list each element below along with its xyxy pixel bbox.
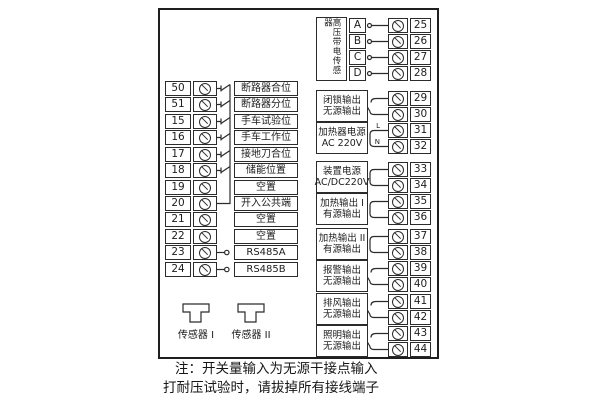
terminal-number: 41: [410, 294, 431, 309]
screw-terminal: [193, 245, 217, 260]
group-label-line2: 无源输出: [323, 106, 361, 117]
terminal-number: 36: [410, 210, 431, 225]
screw-terminal: [388, 107, 408, 122]
sensor-channel-label: C: [349, 50, 366, 65]
group-label-line2: 有源输出: [323, 244, 361, 255]
terminal-number: 23: [165, 245, 191, 260]
screw-terminal: [388, 34, 408, 49]
group-label-line1: 闭锁输出: [323, 95, 361, 106]
screw-terminal-icon: [392, 344, 404, 356]
screw-terminal-icon: [392, 52, 404, 64]
terminal-number: 51: [165, 97, 191, 112]
group-label-line1: 照明输出: [323, 330, 361, 341]
screw-terminal: [388, 310, 408, 325]
screw-terminal-icon: [392, 36, 404, 48]
input-signal-label: 空置: [234, 180, 298, 195]
screw-terminal: [193, 81, 217, 96]
screw-terminal: [388, 123, 408, 138]
terminal-number: 28: [410, 66, 431, 81]
screw-terminal: [193, 163, 217, 178]
terminal-number: 21: [165, 212, 191, 227]
screw-terminal-icon: [199, 198, 211, 210]
screw-terminal: [193, 180, 217, 195]
terminal-number: 42: [410, 310, 431, 325]
sensor-channel-label: D: [349, 66, 366, 81]
group-label-line2: 无源输出: [323, 276, 361, 287]
screw-terminal-icon: [199, 116, 211, 128]
input-signal-label: RS485B: [234, 262, 298, 277]
screw-terminal-icon: [199, 231, 211, 243]
terminal-number: 40: [410, 277, 431, 292]
input-signal-label: 开入公共端: [234, 196, 298, 211]
input-signal-label: 储能位置: [234, 163, 298, 178]
screw-terminal-icon: [392, 263, 404, 275]
terminal-number: 29: [410, 91, 431, 106]
screw-terminal-icon: [199, 264, 211, 276]
screw-terminal-icon: [392, 196, 404, 208]
screw-terminal-icon: [392, 247, 404, 259]
hv-sensor-group-label: 高压带电传感器: [316, 17, 347, 81]
terminal-number: 20: [165, 196, 191, 211]
input-signal-label: RS485A: [234, 245, 298, 260]
terminal-number: 35: [410, 194, 431, 209]
output-group-label: 闭锁输出 无源输出: [316, 90, 368, 122]
terminal-number: 19: [165, 180, 191, 195]
sensor-channel-label: B: [349, 34, 366, 49]
terminal-number: 24: [165, 262, 191, 277]
output-group-label: 报警输出 无源输出: [316, 260, 368, 292]
terminal-number: 32: [410, 139, 431, 154]
screw-terminal: [388, 277, 408, 292]
terminal-number: 15: [165, 114, 191, 129]
group-label-line1: 加热输出 I: [320, 198, 364, 209]
screw-terminal-icon: [392, 180, 404, 192]
screw-terminal-icon: [199, 182, 211, 194]
screw-terminal: [388, 342, 408, 357]
screw-terminal: [388, 178, 408, 193]
screw-terminal: [193, 114, 217, 129]
terminal-number: 44: [410, 342, 431, 357]
terminal-number: 17: [165, 147, 191, 162]
screw-terminal: [388, 245, 408, 260]
screw-terminal: [193, 196, 217, 211]
screw-terminal-icon: [199, 214, 211, 226]
screw-terminal: [388, 229, 408, 244]
group-label-line2: 无源输出: [323, 341, 361, 352]
group-label-line1: 装置电源: [323, 166, 361, 177]
screw-terminal-icon: [392, 68, 404, 80]
screw-terminal-icon: [199, 149, 211, 161]
footnote: 注：开关量输入为无源干接点输入 打耐压试验时，请拔掉所有接线端子: [163, 360, 379, 398]
screw-terminal: [388, 210, 408, 225]
sensor-1-label: 传感器 I: [170, 326, 222, 341]
screw-terminal-icon: [199, 99, 211, 111]
screw-terminal: [388, 194, 408, 209]
screw-terminal: [388, 91, 408, 106]
screw-terminal: [388, 261, 408, 276]
screw-terminal-icon: [392, 125, 404, 137]
screw-terminal-icon: [199, 165, 211, 177]
output-group-label: 加热器电源 AC 220V: [316, 122, 368, 154]
terminal-number: 22: [165, 229, 191, 244]
screw-terminal-icon: [392, 109, 404, 121]
group-label-line2: 有源输出: [323, 209, 361, 220]
input-signal-label: 断路器合位: [234, 81, 298, 96]
group-label-line1: 加热器电源: [318, 127, 366, 138]
screw-terminal-icon: [392, 296, 404, 308]
screw-terminal-icon: [392, 312, 404, 324]
group-label-line2: AC/DC220V: [315, 177, 370, 188]
screw-terminal-icon: [392, 93, 404, 105]
output-group-label: 排风输出 无源输出: [316, 293, 368, 325]
screw-terminal-icon: [392, 164, 404, 176]
screw-terminal: [388, 294, 408, 309]
screw-terminal-icon: [199, 247, 211, 259]
terminal-wiring-diagram: L N 50 断路器合位 51 断路器分位 15 手车试验位 16 手车工作位 …: [0, 0, 600, 400]
terminal-number: 31: [410, 123, 431, 138]
output-group-label: 照明输出 无源输出: [316, 325, 368, 357]
terminal-number: 16: [165, 130, 191, 145]
screw-terminal: [193, 147, 217, 162]
terminal-number: 39: [410, 261, 431, 276]
footnote-line2: 打耐压试验时，请拔掉所有接线端子: [163, 379, 379, 398]
screw-terminal-icon: [392, 279, 404, 291]
screw-terminal-icon: [392, 141, 404, 153]
terminal-number: 43: [410, 326, 431, 341]
screw-terminal: [388, 18, 408, 33]
group-label-line1: 报警输出: [323, 265, 361, 276]
screw-terminal: [193, 130, 217, 145]
output-group-label: 加热输出 I 有源输出: [316, 193, 368, 225]
screw-terminal: [388, 162, 408, 177]
input-signal-label: 空置: [234, 212, 298, 227]
screw-terminal-icon: [392, 20, 404, 32]
input-signal-label: 手车试验位: [234, 114, 298, 129]
group-label-line2: 无源输出: [323, 309, 361, 320]
input-signal-label: 空置: [234, 229, 298, 244]
input-signal-label: 接地刀合位: [234, 147, 298, 162]
footnote-line1: 注：开关量输入为无源干接点输入: [175, 360, 379, 379]
screw-terminal-icon: [392, 212, 404, 224]
terminal-number: 30: [410, 107, 431, 122]
output-group-label: 加热输出 II 有源输出: [316, 228, 368, 260]
screw-terminal-icon: [199, 83, 211, 95]
screw-terminal: [193, 212, 217, 227]
group-label-line2: AC 220V: [322, 138, 363, 149]
terminal-number: 25: [410, 18, 431, 33]
screw-terminal: [193, 262, 217, 277]
group-label-line1: 加热输出 II: [319, 233, 366, 244]
screw-terminal: [388, 66, 408, 81]
screw-terminal: [388, 139, 408, 154]
screw-terminal-icon: [392, 328, 404, 340]
terminal-number: 18: [165, 163, 191, 178]
input-signal-label: 手车工作位: [234, 130, 298, 145]
screw-terminal: [388, 50, 408, 65]
screw-terminal-icon: [199, 132, 211, 144]
sensor-2-label: 传感器 II: [225, 326, 277, 341]
input-signal-label: 断路器分位: [234, 97, 298, 112]
terminal-number: 37: [410, 229, 431, 244]
sensor-channel-label: A: [349, 18, 366, 33]
screw-terminal: [193, 229, 217, 244]
screw-terminal: [193, 97, 217, 112]
terminal-number: 26: [410, 34, 431, 49]
terminal-number: 27: [410, 50, 431, 65]
screw-terminal-icon: [392, 231, 404, 243]
terminal-number: 38: [410, 245, 431, 260]
terminal-number: 50: [165, 81, 191, 96]
screw-terminal: [388, 326, 408, 341]
output-group-label: 装置电源 AC/DC220V: [316, 161, 368, 193]
terminal-number: 34: [410, 178, 431, 193]
terminal-number: 33: [410, 162, 431, 177]
group-label-line1: 排风输出: [323, 298, 361, 309]
